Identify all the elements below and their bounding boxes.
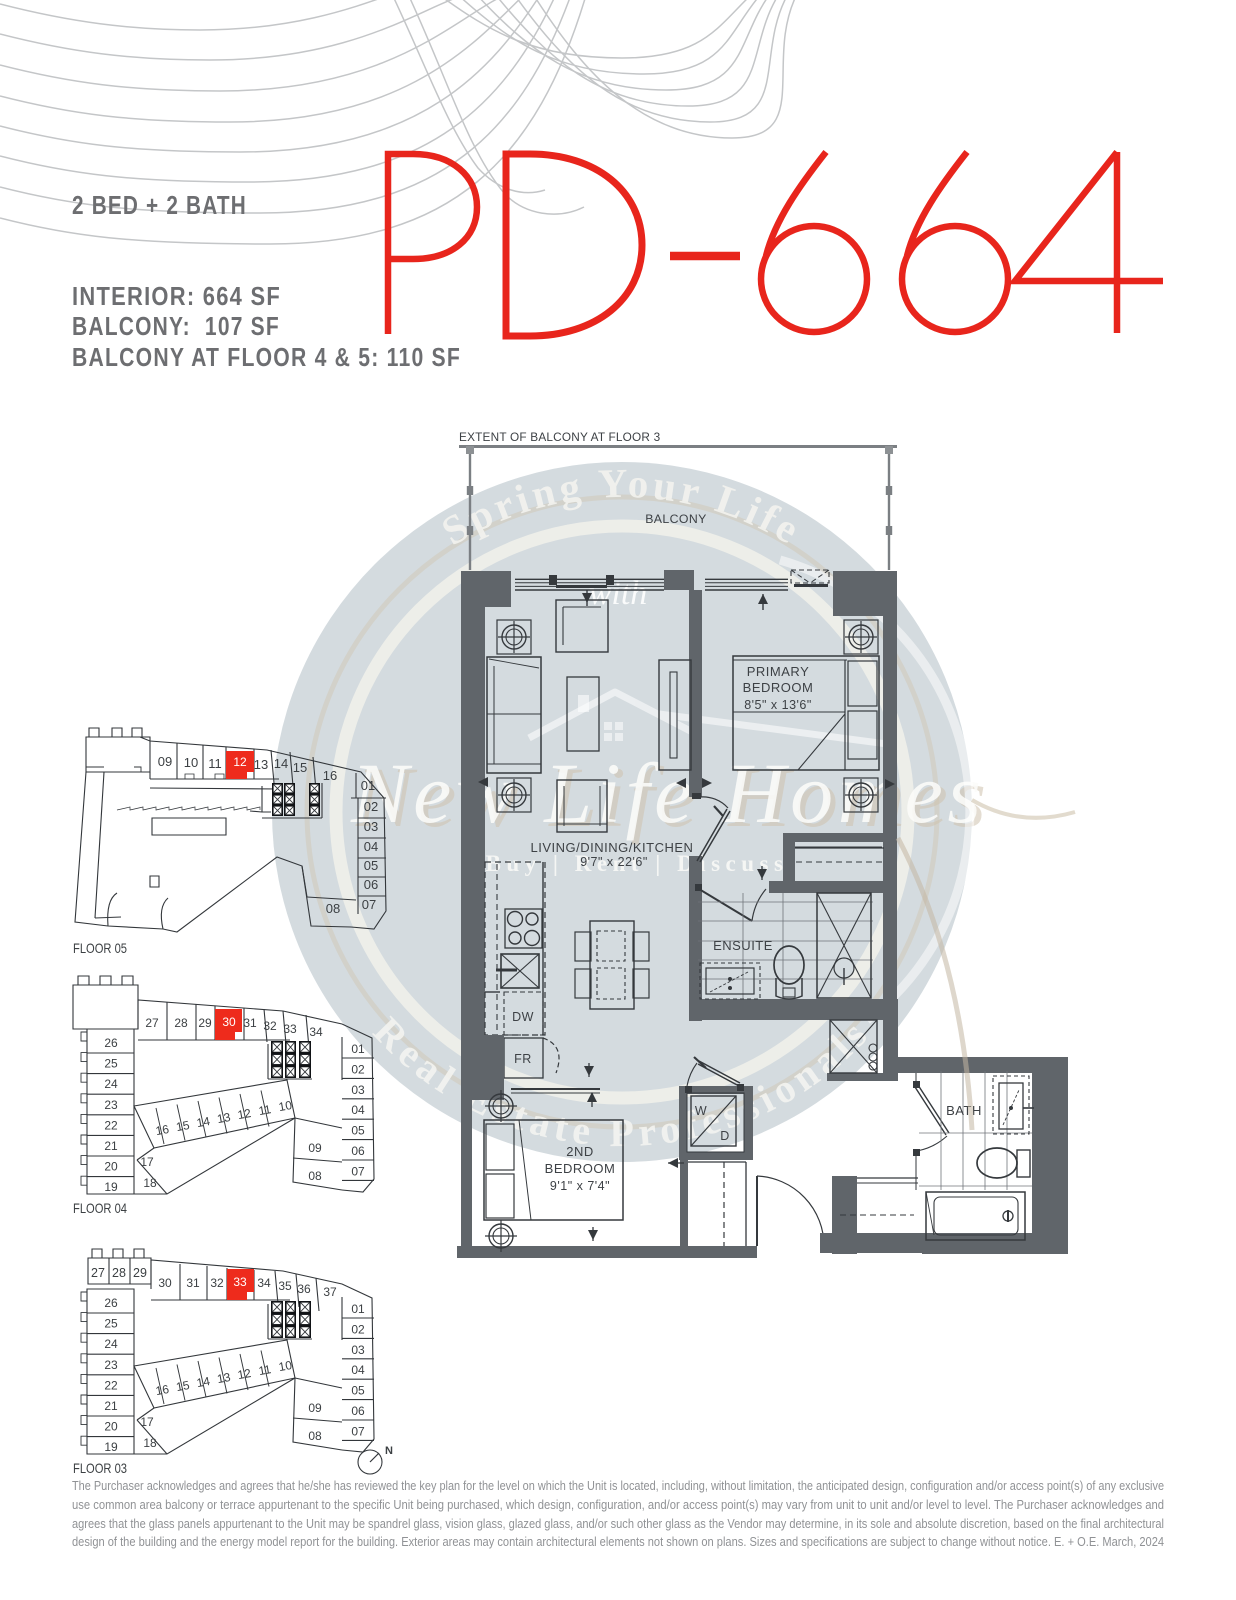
- svg-text:08: 08: [308, 1169, 322, 1183]
- svg-text:BEDROOM: BEDROOM: [743, 680, 814, 695]
- svg-text:22: 22: [104, 1378, 118, 1392]
- svg-text:13: 13: [254, 757, 268, 772]
- svg-text:BATH: BATH: [946, 1103, 982, 1118]
- svg-text:02: 02: [351, 1322, 365, 1336]
- svg-text:30: 30: [222, 1015, 236, 1029]
- svg-text:12: 12: [233, 755, 247, 769]
- svg-text:22: 22: [104, 1118, 118, 1132]
- svg-text:06: 06: [351, 1144, 365, 1158]
- svg-text:10: 10: [184, 755, 198, 770]
- svg-text:01: 01: [361, 778, 375, 793]
- svg-text:FLOOR 05: FLOOR 05: [73, 940, 127, 956]
- svg-text:07: 07: [351, 1164, 365, 1178]
- svg-text:18: 18: [143, 1436, 157, 1450]
- svg-text:30: 30: [158, 1276, 172, 1290]
- svg-text:14: 14: [196, 1114, 212, 1130]
- svg-text:17: 17: [140, 1415, 154, 1429]
- svg-text:11: 11: [257, 1362, 272, 1378]
- svg-text:28: 28: [174, 1016, 188, 1030]
- svg-text:11: 11: [208, 756, 222, 771]
- svg-text:08: 08: [326, 901, 340, 916]
- svg-text:11: 11: [257, 1102, 272, 1118]
- svg-text:13: 13: [216, 1370, 232, 1386]
- svg-text:16: 16: [323, 768, 337, 783]
- svg-text:24: 24: [104, 1077, 118, 1091]
- svg-text:02: 02: [351, 1062, 365, 1076]
- svg-text:33: 33: [233, 1275, 247, 1289]
- svg-text:07: 07: [351, 1424, 365, 1438]
- svg-text:15: 15: [293, 760, 307, 775]
- svg-text:37: 37: [323, 1285, 337, 1299]
- svg-text:PRIMARY: PRIMARY: [747, 664, 810, 679]
- svg-text:14: 14: [196, 1374, 212, 1390]
- svg-text:04: 04: [364, 839, 378, 854]
- svg-text:01: 01: [351, 1042, 365, 1056]
- svg-text:28: 28: [112, 1266, 126, 1280]
- svg-text:33: 33: [283, 1022, 297, 1036]
- svg-text:20: 20: [104, 1420, 118, 1434]
- svg-text:19: 19: [104, 1180, 118, 1194]
- svg-text:29: 29: [133, 1266, 147, 1280]
- svg-text:FR: FR: [514, 1052, 532, 1066]
- svg-text:10: 10: [278, 1358, 294, 1374]
- svg-text:32: 32: [210, 1276, 224, 1290]
- svg-text:09: 09: [308, 1141, 322, 1155]
- svg-text:03: 03: [364, 819, 378, 834]
- svg-text:32: 32: [263, 1019, 277, 1033]
- svg-text:LIVING/DINING/KITCHEN: LIVING/DINING/KITCHEN: [531, 840, 694, 855]
- svg-text:03: 03: [351, 1083, 365, 1097]
- svg-text:9'1" x 7'4": 9'1" x 7'4": [550, 1179, 610, 1193]
- svg-text:26: 26: [104, 1296, 118, 1310]
- svg-text:20: 20: [104, 1160, 118, 1174]
- svg-text:21: 21: [104, 1139, 118, 1153]
- svg-text:06: 06: [364, 877, 378, 892]
- svg-text:02: 02: [364, 799, 378, 814]
- svg-text:12: 12: [237, 1366, 253, 1382]
- svg-text:13: 13: [216, 1110, 232, 1126]
- svg-text:08: 08: [308, 1429, 322, 1443]
- svg-text:N: N: [385, 1445, 393, 1457]
- svg-text:ENSUITE: ENSUITE: [713, 938, 773, 953]
- svg-text:9'7" x 22'6": 9'7" x 22'6": [580, 855, 648, 869]
- svg-text:04: 04: [351, 1363, 365, 1377]
- svg-text:31: 31: [186, 1276, 200, 1290]
- svg-text:12: 12: [237, 1106, 253, 1122]
- svg-text:D: D: [720, 1129, 730, 1143]
- svg-text:15: 15: [175, 1118, 191, 1134]
- svg-text:DW: DW: [512, 1010, 534, 1024]
- svg-text:17: 17: [140, 1155, 154, 1169]
- svg-text:23: 23: [104, 1358, 118, 1372]
- svg-text:05: 05: [351, 1124, 365, 1138]
- svg-text:03: 03: [351, 1343, 365, 1357]
- svg-text:25: 25: [104, 1317, 118, 1331]
- svg-text:BEDROOM: BEDROOM: [545, 1161, 616, 1176]
- svg-text:05: 05: [351, 1384, 365, 1398]
- svg-text:19: 19: [104, 1440, 118, 1454]
- svg-text:27: 27: [91, 1266, 105, 1280]
- svg-text:18: 18: [143, 1176, 157, 1190]
- svg-text:16: 16: [155, 1382, 171, 1398]
- svg-text:09: 09: [308, 1401, 322, 1415]
- svg-text:16: 16: [155, 1122, 171, 1138]
- svg-text:14: 14: [274, 756, 288, 771]
- svg-text:EXTENT OF BALCONY AT FLOOR 3: EXTENT OF BALCONY AT FLOOR 3: [459, 430, 661, 444]
- svg-text:24: 24: [104, 1337, 118, 1351]
- svg-text:FLOOR 03: FLOOR 03: [73, 1460, 127, 1476]
- svg-text:31: 31: [243, 1016, 257, 1030]
- svg-text:06: 06: [351, 1404, 365, 1418]
- svg-text:35: 35: [278, 1279, 292, 1293]
- svg-text:04: 04: [351, 1103, 365, 1117]
- svg-text:FLOOR 04: FLOOR 04: [73, 1200, 127, 1216]
- svg-text:2ND: 2ND: [566, 1144, 594, 1159]
- svg-text:05: 05: [364, 858, 378, 873]
- svg-text:10: 10: [278, 1098, 294, 1114]
- svg-text:34: 34: [257, 1276, 271, 1290]
- svg-text:34: 34: [309, 1025, 323, 1039]
- svg-text:15: 15: [175, 1378, 191, 1394]
- svg-text:W: W: [695, 1104, 707, 1118]
- svg-text:07: 07: [362, 897, 376, 912]
- svg-text:09: 09: [158, 754, 172, 769]
- svg-text:29: 29: [198, 1016, 212, 1030]
- svg-text:8'5" x 13'6": 8'5" x 13'6": [744, 698, 812, 712]
- svg-text:BALCONY: BALCONY: [645, 512, 707, 526]
- svg-text:23: 23: [104, 1098, 118, 1112]
- svg-text:36: 36: [297, 1282, 311, 1296]
- svg-text:21: 21: [104, 1399, 118, 1413]
- svg-text:26: 26: [104, 1036, 118, 1050]
- svg-text:27: 27: [145, 1016, 159, 1030]
- svg-text:25: 25: [104, 1057, 118, 1071]
- svg-text:01: 01: [351, 1302, 365, 1316]
